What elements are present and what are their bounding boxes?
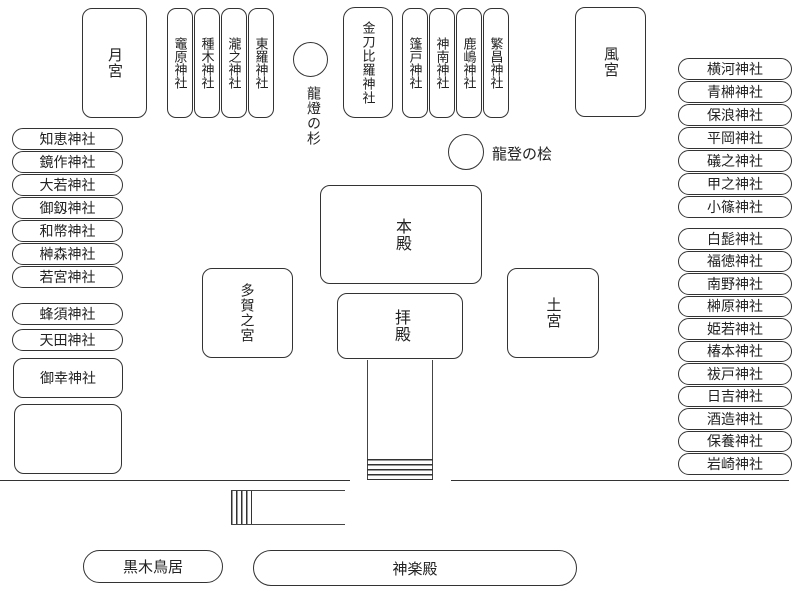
kaze-no-miya-label: 風宮 bbox=[600, 46, 621, 78]
box-tsuchi-no-miya: 土宮 bbox=[507, 268, 599, 358]
left-shrine-column-lower: 蜂須神社天田神社 bbox=[12, 303, 123, 351]
shrine-box: 鏡作神社 bbox=[12, 151, 123, 173]
stairs bbox=[367, 459, 433, 480]
side-path bbox=[231, 490, 345, 525]
shrine-box: 篷戸神社 bbox=[402, 8, 428, 118]
left-shrine-column-upper: 知恵神社鏡作神社大若神社御釼神社和幣神社榊森神社若宮神社 bbox=[12, 128, 123, 288]
shrine-box: 岩崎神社 bbox=[678, 453, 792, 475]
shrine-box: 保浪神社 bbox=[678, 104, 792, 126]
shrine-box: 姫若神社 bbox=[678, 318, 792, 340]
tsuchi-no-miya-label: 土宮 bbox=[543, 297, 564, 329]
shrine-box: 知恵神社 bbox=[12, 128, 123, 150]
kagura-den-label: 神楽殿 bbox=[392, 558, 437, 579]
shrine-box: 祓戸神社 bbox=[678, 363, 792, 385]
shrine-box: 大若神社 bbox=[12, 174, 123, 196]
konpira-label: 金刀比羅神社 bbox=[359, 21, 378, 105]
precinct-boundary-line-left bbox=[0, 480, 350, 481]
shrine-box: 礒之神社 bbox=[678, 150, 792, 172]
shrine-box: 繁昌神社 bbox=[483, 8, 509, 118]
shrine-box: 甲之神社 bbox=[678, 173, 792, 195]
shrine-box: 瀧之神社 bbox=[221, 8, 247, 118]
box-konpira-jinja: 金刀比羅神社 bbox=[343, 7, 393, 118]
precinct-boundary-line-right bbox=[451, 480, 789, 481]
shrine-box: 天田神社 bbox=[12, 329, 123, 351]
shrine-box: 蜂須神社 bbox=[12, 303, 123, 325]
box-kaze-no-miya: 風宮 bbox=[575, 7, 646, 117]
stairs bbox=[231, 491, 252, 524]
box-kuroki-torii: 黒木鳥居 bbox=[83, 550, 223, 583]
shrine-box: 東羅神社 bbox=[248, 8, 274, 118]
shrine-box: 若宮神社 bbox=[12, 266, 123, 288]
shrine-box: 青榊神社 bbox=[678, 81, 792, 103]
ryuto-no-hinoki-label: 龍登の桧 bbox=[492, 143, 552, 164]
shrine-box: 平岡神社 bbox=[678, 127, 792, 149]
top-center-shrine-row: 篷戸神社神南神社鹿嶋神社繁昌神社 bbox=[402, 8, 509, 118]
goko-jinja-label: 御幸神社 bbox=[40, 368, 96, 388]
haiden-label: 拝殿 bbox=[388, 309, 412, 343]
shrine-box: 福徳神社 bbox=[678, 251, 792, 273]
box-honden: 本殿 bbox=[320, 185, 482, 284]
right-shrine-column-lower: 白髭神社福徳神社南野神社榊原神社姫若神社椿本神社祓戸神社日吉神社酒造神社保養神社… bbox=[678, 228, 792, 475]
shrine-box: 小篠神社 bbox=[678, 196, 792, 218]
box-haiden: 拝殿 bbox=[337, 293, 463, 359]
honden-label: 本殿 bbox=[389, 218, 413, 252]
unlabeled-building-box bbox=[14, 404, 122, 474]
shrine-box: 日吉神社 bbox=[678, 386, 792, 408]
sacred-tree-circle-sugi bbox=[293, 42, 328, 77]
sacred-tree-circle-hinoki bbox=[448, 134, 484, 170]
right-shrine-column-upper: 横河神社青榊神社保浪神社平岡神社礒之神社甲之神社小篠神社 bbox=[678, 58, 792, 218]
top-left-shrine-row: 竈原神社種木神社瀧之神社東羅神社 bbox=[167, 8, 274, 118]
shrine-box: 白髭神社 bbox=[678, 228, 792, 250]
shrine-box: 和幣神社 bbox=[12, 220, 123, 242]
shrine-box: 保養神社 bbox=[678, 431, 792, 453]
shrine-box: 榊原神社 bbox=[678, 296, 792, 318]
shrine-box: 横河神社 bbox=[678, 58, 792, 80]
shrine-box: 南野神社 bbox=[678, 273, 792, 295]
box-goko-jinja: 御幸神社 bbox=[13, 358, 123, 398]
box-kagura-den: 神楽殿 bbox=[253, 550, 577, 586]
shrine-box: 鹿嶋神社 bbox=[456, 8, 482, 118]
shrine-box: 御釼神社 bbox=[12, 197, 123, 219]
ryuto-no-sugi-label: 龍燈の杉 bbox=[304, 86, 324, 146]
tsuki-no-miya-label: 月宮 bbox=[104, 47, 125, 79]
taga-no-miya-label: 多賀之宮 bbox=[238, 283, 258, 343]
shrine-box: 椿本神社 bbox=[678, 341, 792, 363]
box-taga-no-miya: 多賀之宮 bbox=[202, 268, 293, 358]
shrine-box: 竈原神社 bbox=[167, 8, 193, 118]
shrine-box: 酒造神社 bbox=[678, 408, 792, 430]
kuroki-torii-label: 黒木鳥居 bbox=[123, 556, 183, 577]
shrine-box: 種木神社 bbox=[194, 8, 220, 118]
shrine-precinct-map: 月宮 竈原神社種木神社瀧之神社東羅神社 龍燈の杉 金刀比羅神社 篷戸神社神南神社… bbox=[0, 0, 800, 600]
shrine-box: 神南神社 bbox=[429, 8, 455, 118]
box-tsuki-no-miya: 月宮 bbox=[82, 8, 147, 118]
shrine-box: 榊森神社 bbox=[12, 243, 123, 265]
